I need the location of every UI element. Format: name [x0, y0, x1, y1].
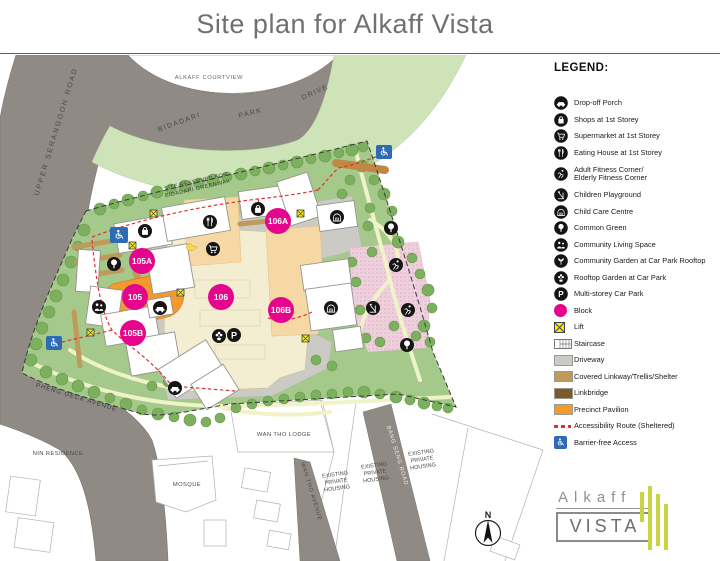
logo-vista-text: VISTA: [556, 512, 650, 542]
driveway-icon: [554, 355, 574, 366]
legend-item-community-garden: Community Garden at Car Park Rooftop: [554, 253, 720, 270]
rooftop-garden-icon: [212, 329, 226, 343]
svg-text:N: N: [485, 510, 492, 520]
label-existing-housing-3: EXISTING PRIVATE HOUSING: [408, 448, 437, 471]
label-wan-tho-lodge: WAN THO LODGE: [257, 432, 311, 438]
legend-item-drop-off-porch: Drop-off Porch: [554, 95, 720, 112]
covered-linkway-icon: [554, 371, 574, 382]
legend-item-linkbridge: Linkbridge: [554, 385, 720, 402]
block-marker-106b: 106B: [268, 297, 294, 323]
children-playground-icon: [554, 188, 574, 202]
legend-item-rooftop-garden: Rooftop Garden at Car Park: [554, 270, 720, 287]
svg-text:105A: 105A: [132, 256, 152, 266]
accessibility-route-icon: [554, 425, 574, 428]
multi-storey-car-park-icon: [227, 328, 241, 342]
legend-item-common-green: Common Green: [554, 220, 720, 237]
community-garden-icon: [554, 254, 574, 268]
common-green-icon: [400, 338, 414, 352]
legend-item-lift: Lift: [554, 319, 720, 336]
svg-text:105B: 105B: [123, 328, 143, 338]
legend-item-shops: Shops at 1st Storey: [554, 112, 720, 129]
svg-text:105: 105: [128, 292, 142, 302]
precinct-pavilion-icon: [554, 404, 574, 415]
legend-item-children-playground: Children Playground: [554, 187, 720, 204]
shops-icon: [554, 113, 574, 127]
rooftop-garden-icon: [554, 271, 574, 285]
svg-text:106B: 106B: [271, 305, 291, 315]
drop-off-porch-icon: [554, 96, 574, 110]
block-marker-105: 105: [122, 284, 148, 310]
label-alkaff-courtview: ALKAFF COURTVIEW: [175, 75, 243, 81]
linkbridge-icon: [554, 388, 574, 399]
page-title: Site plan for Alkaff Vista: [0, 9, 690, 40]
north-arrow: N: [476, 510, 501, 546]
legend-item-barrier-free: Barrier-free Access: [554, 435, 720, 452]
legend-panel: LEGEND: Drop-off Porch Shops at 1st Stor…: [554, 62, 720, 451]
block-marker-105a: 105A: [129, 248, 155, 274]
legend-item-child-care: Child Care Centre: [554, 204, 720, 221]
legend-item-covered-linkway: Covered Linkway/Trellis/Shelter: [554, 369, 720, 386]
block-marker-105b: 105B: [120, 320, 146, 346]
legend-item-precinct-pavilion: Precinct Pavilion: [554, 402, 720, 419]
drop-off-porch-icon: [153, 301, 167, 315]
drop-off-porch-icon: [168, 381, 182, 395]
barrier-free-access-icon: [376, 145, 392, 159]
legend-item-car-park: Multi-storey Car Park: [554, 286, 720, 303]
label-existing-housing-2: EXISTING PRIVATE HOUSING: [361, 461, 390, 484]
legend-item-accessibility-route: Accessibility Route (Sheltered): [554, 418, 720, 435]
common-green-icon: [107, 257, 121, 271]
label-existing-housing-1: EXISTING PRIVATE HOUSING: [322, 470, 351, 493]
legend-item-supermarket: Supermarket at 1st Storey: [554, 128, 720, 145]
shops-icon: [138, 224, 152, 238]
logo-bars-icon: [640, 486, 680, 554]
alkaff-vista-logo: Alkaff VISTA: [556, 489, 706, 555]
multi-storey-car-park-icon: [554, 287, 574, 301]
adult-fitness-icon: [389, 258, 403, 272]
svg-text:106: 106: [214, 292, 228, 302]
barrier-free-access-icon: [110, 227, 128, 243]
legend-item-driveway: Driveway: [554, 352, 720, 369]
community-living-space-icon: [554, 238, 574, 252]
eating-house-icon: [203, 215, 217, 229]
barrier-free-access-icon: [554, 436, 574, 449]
svg-text:106A: 106A: [268, 216, 288, 226]
supermarket-icon: [206, 242, 220, 256]
site-plan-map: 105A 105 105B 106 106A 106B ALKAFF COURT…: [0, 55, 545, 561]
block-marker-106a: 106A: [265, 208, 291, 234]
common-green-icon: [384, 221, 398, 235]
common-green-icon: [554, 221, 574, 235]
site-plan-page: P Site plan for Alkaff Vista: [0, 0, 720, 561]
legend-item-staircase: Staircase: [554, 336, 720, 353]
legend-item-community-living: Community Living Space: [554, 237, 720, 254]
adult-fitness-icon: [401, 303, 415, 317]
legend-item-adult-fitness: Adult Fitness Corner/Elderly Fitness Cor…: [554, 161, 720, 187]
title-divider: [0, 53, 720, 54]
legend-item-block: Block: [554, 303, 720, 320]
adult-fitness-icon: [554, 167, 574, 181]
eating-house-icon: [554, 146, 574, 160]
supermarket-icon: [554, 129, 574, 143]
children-playground-icon: [366, 301, 380, 315]
label-mosque: MOSQUE: [173, 482, 201, 488]
child-care-centre-icon: [324, 301, 338, 315]
child-care-centre-icon: [330, 210, 344, 224]
legend-title: LEGEND:: [554, 62, 720, 74]
community-living-space-icon: [92, 300, 106, 314]
block-marker-106: 106: [208, 284, 234, 310]
staircase-icon: [554, 339, 574, 349]
lift-icon: [554, 322, 574, 333]
child-care-centre-icon: [554, 205, 574, 219]
shops-icon: [251, 202, 265, 216]
legend-item-eating-house: Eating House at 1st Storey: [554, 145, 720, 162]
logo-alkaff-text: Alkaff: [556, 489, 652, 509]
barrier-free-access-icon: [46, 336, 62, 350]
block-icon: [554, 304, 574, 317]
label-nin-residence: NIN RESIDENCE: [33, 451, 84, 457]
